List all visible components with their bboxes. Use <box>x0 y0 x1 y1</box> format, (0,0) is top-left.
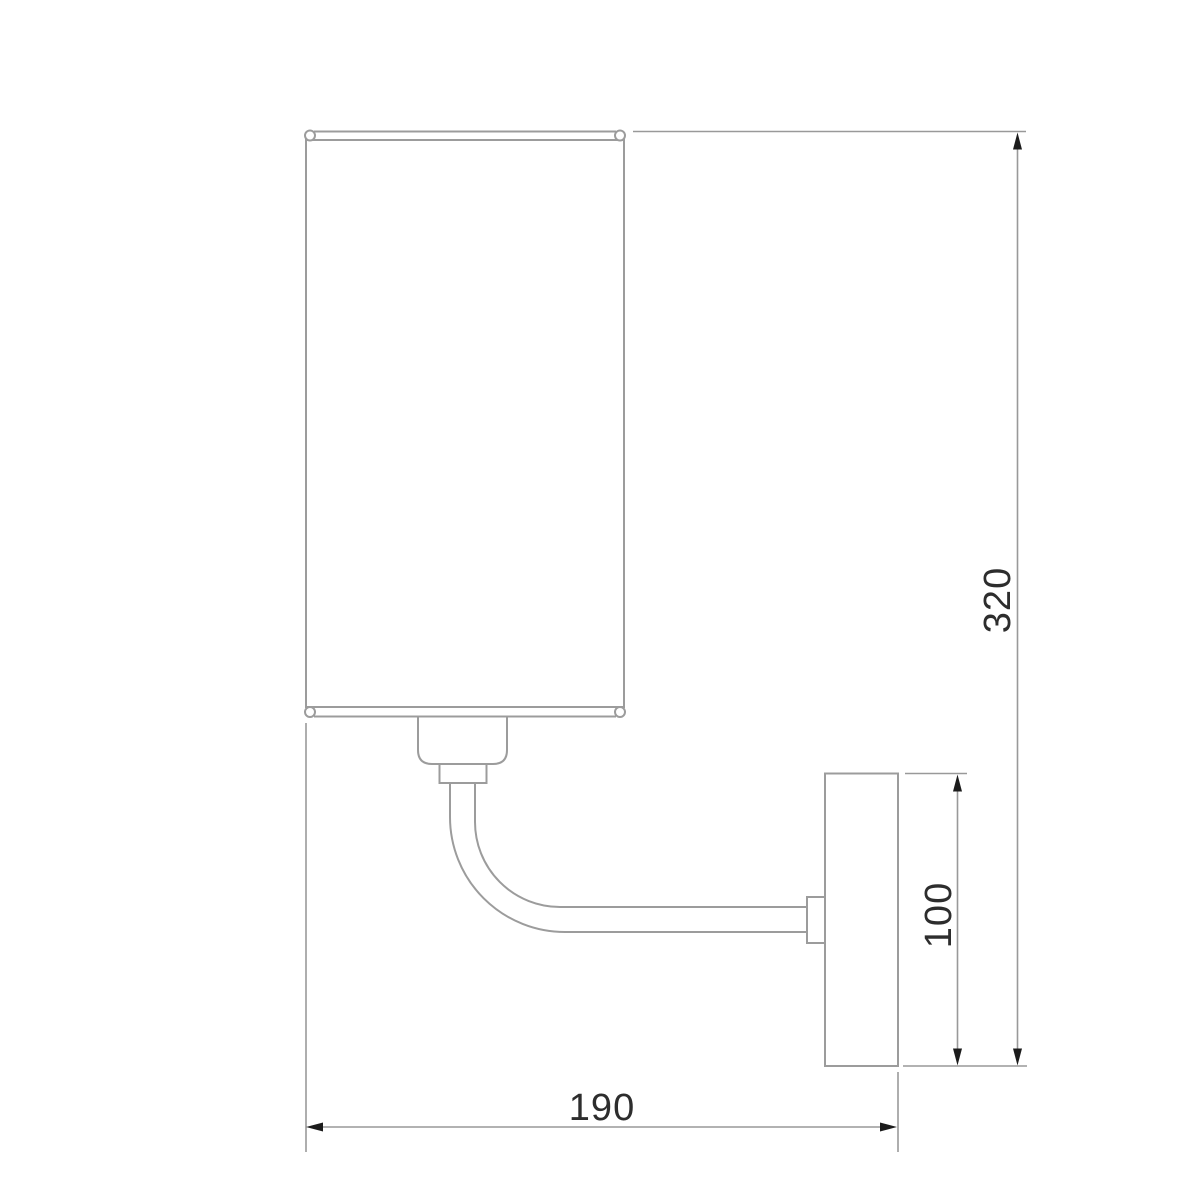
drawing-canvas: 320 100 190 <box>0 0 1200 1200</box>
shade-bead-top-right <box>615 131 625 141</box>
socket-block <box>440 764 487 783</box>
wall-plate <box>825 774 898 1067</box>
label-backplate-height: 100 <box>918 882 960 948</box>
label-projection: 190 <box>569 1087 635 1129</box>
dimension-labels: 320 100 190 <box>569 567 1019 1129</box>
shade-body <box>306 140 624 707</box>
shade-bead-bottom-right <box>615 707 625 717</box>
arm-outer-edge <box>450 783 807 932</box>
dimension-lines <box>306 132 1027 1153</box>
arrow-projection-right <box>880 1123 897 1132</box>
shade-bead-bottom-left <box>305 707 315 717</box>
lamp-holder-cup <box>418 717 507 764</box>
label-overall-height: 320 <box>977 567 1019 633</box>
shade-bead-top-left <box>305 131 315 141</box>
sconce-dimension-drawing: 320 100 190 <box>0 0 1200 1200</box>
arrow-backplate-top <box>953 775 962 792</box>
arrow-projection-left <box>306 1123 323 1132</box>
lamp-body-outlines <box>305 131 898 1067</box>
dimension-arrowheads <box>306 133 1022 1132</box>
arm-inner-edge <box>475 783 807 907</box>
arrow-overall-height-bottom <box>1013 1049 1022 1066</box>
arrow-overall-height-top <box>1013 133 1022 150</box>
arrow-backplate-bottom <box>953 1049 962 1066</box>
arm-wall-connector <box>807 897 825 943</box>
